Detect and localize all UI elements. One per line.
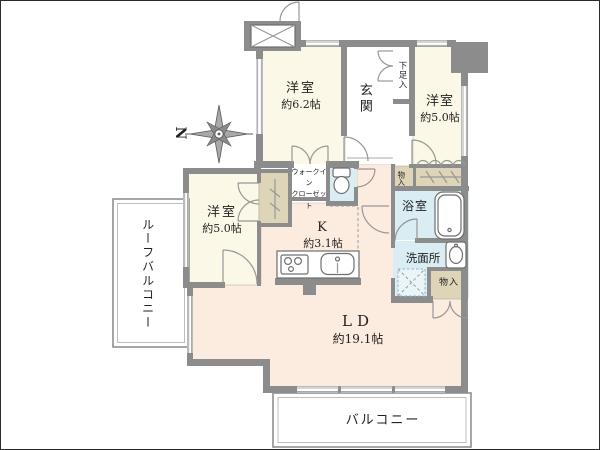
compass-north-label: N <box>169 123 189 143</box>
room-name: K <box>275 220 371 237</box>
kitchen-sink-icon <box>321 254 354 275</box>
room-name: LD <box>293 312 423 332</box>
room-size: 約6.2帖 <box>257 98 345 112</box>
window-ld-balcony-sliding <box>297 387 445 393</box>
label-balcony: バルコニー <box>313 413 453 430</box>
label-storage-lower: 物入 <box>431 278 467 290</box>
label-storage-upper: 物入 <box>396 168 406 188</box>
window-bedroom50-top <box>417 41 447 47</box>
compass-icon <box>185 105 253 163</box>
kitchen-counter <box>277 251 359 278</box>
toilet-icon <box>333 168 350 194</box>
floor-plan: 洋室 約6.2帖 洋室 約5.0帖 洋室 約5.0帖 K 約3.1帖 LD 約1… <box>0 0 600 450</box>
label-kitchen: K 約3.1帖 <box>275 220 371 251</box>
label-walk-in-closet: ウォークイン クローゼット <box>289 167 329 212</box>
stove-icon <box>281 255 308 274</box>
room-name: 洋室 <box>411 94 469 111</box>
room-size: 約5.0帖 <box>411 111 469 125</box>
entrance-door-arc <box>280 2 299 21</box>
room-size: 約5.0帖 <box>185 222 259 236</box>
pipe-space-icon <box>251 25 295 47</box>
wic-line2: クローゼット <box>289 189 329 211</box>
label-shoe-storage: 下足入 <box>396 49 407 101</box>
label-living-dining: LD 約19.1帖 <box>293 312 423 347</box>
room-size: 約19.1帖 <box>293 332 423 348</box>
label-washroom: 洗面所 <box>392 251 454 266</box>
label-bathroom: 浴室 <box>393 199 437 215</box>
room-size: 約3.1帖 <box>275 237 371 251</box>
window-top-center <box>306 41 339 47</box>
room-name: 洋室 <box>185 205 259 222</box>
window-ld-left <box>188 296 193 353</box>
label-entrance: 玄関 <box>355 69 372 129</box>
room-name: 洋室 <box>257 81 345 98</box>
label-bedroom-left: 洋室 約5.0帖 <box>185 205 259 236</box>
wic-line1: ウォークイン <box>289 167 329 189</box>
washing-machine-pan-icon <box>398 269 425 296</box>
label-roof-balcony: ルーフバルコニー <box>139 213 155 335</box>
label-bedroom-top-left: 洋室 約6.2帖 <box>257 81 345 112</box>
bathtub-icon <box>435 192 464 239</box>
label-bedroom-top-right: 洋室 約5.0帖 <box>411 94 469 125</box>
